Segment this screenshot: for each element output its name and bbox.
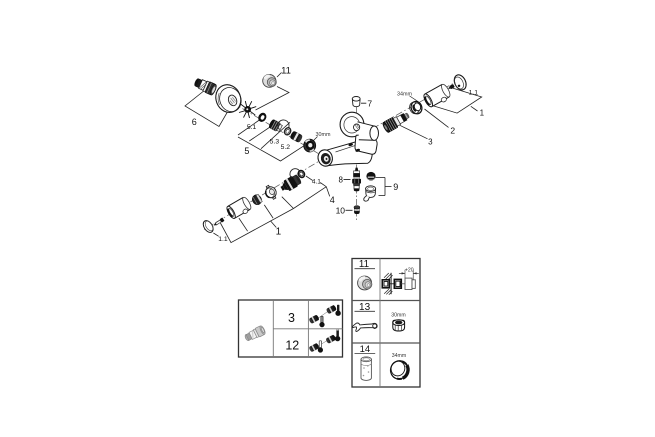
- svg-text:7: 7: [367, 99, 372, 109]
- svg-text:+20: +20: [405, 267, 414, 273]
- svg-text:1.1: 1.1: [469, 89, 479, 96]
- svg-text:1.1: 1.1: [218, 236, 228, 243]
- svg-text:8: 8: [338, 175, 343, 184]
- svg-text:3: 3: [428, 138, 433, 147]
- svg-text:11: 11: [281, 66, 291, 77]
- svg-text:3: 3: [288, 311, 295, 325]
- svg-text:30mm: 30mm: [316, 132, 331, 138]
- svg-text:12: 12: [285, 339, 299, 353]
- svg-text:4.1: 4.1: [312, 179, 321, 186]
- svg-text:5.2: 5.2: [281, 144, 291, 151]
- svg-text:5.3: 5.3: [270, 139, 280, 146]
- svg-text:1: 1: [480, 109, 485, 118]
- svg-text:5.1: 5.1: [247, 124, 257, 131]
- svg-text:5: 5: [244, 146, 249, 156]
- svg-text:30mm: 30mm: [391, 312, 405, 318]
- svg-text:6: 6: [192, 117, 197, 127]
- svg-text:2: 2: [450, 126, 455, 136]
- svg-text:4: 4: [330, 195, 335, 205]
- svg-text:34mm: 34mm: [392, 353, 406, 359]
- svg-text:1: 1: [276, 227, 282, 238]
- svg-text:9: 9: [393, 182, 398, 192]
- svg-text:10: 10: [336, 206, 346, 216]
